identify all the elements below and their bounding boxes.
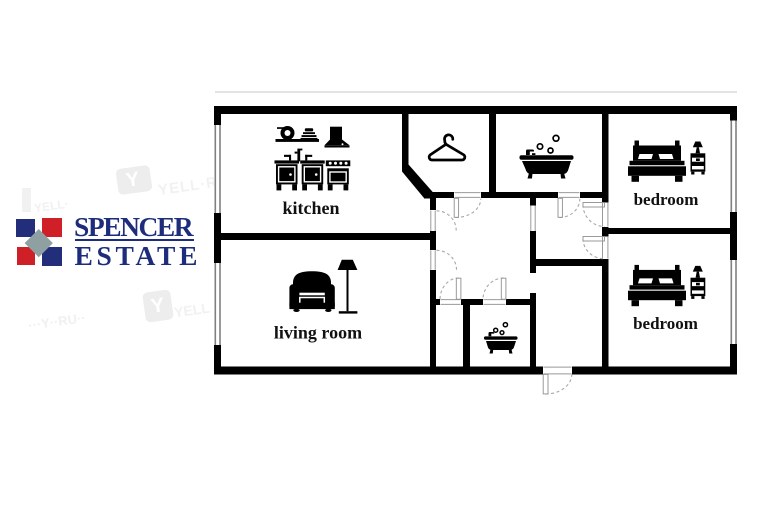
svg-text:bedroom: bedroom (634, 190, 699, 209)
svg-text:kitchen: kitchen (282, 198, 339, 218)
svg-text:bedroom: bedroom (633, 314, 698, 333)
svg-text:living room: living room (274, 322, 362, 342)
svg-text:ESTATE: ESTATE (75, 240, 202, 271)
svg-text:SPENCER: SPENCER (74, 211, 195, 242)
